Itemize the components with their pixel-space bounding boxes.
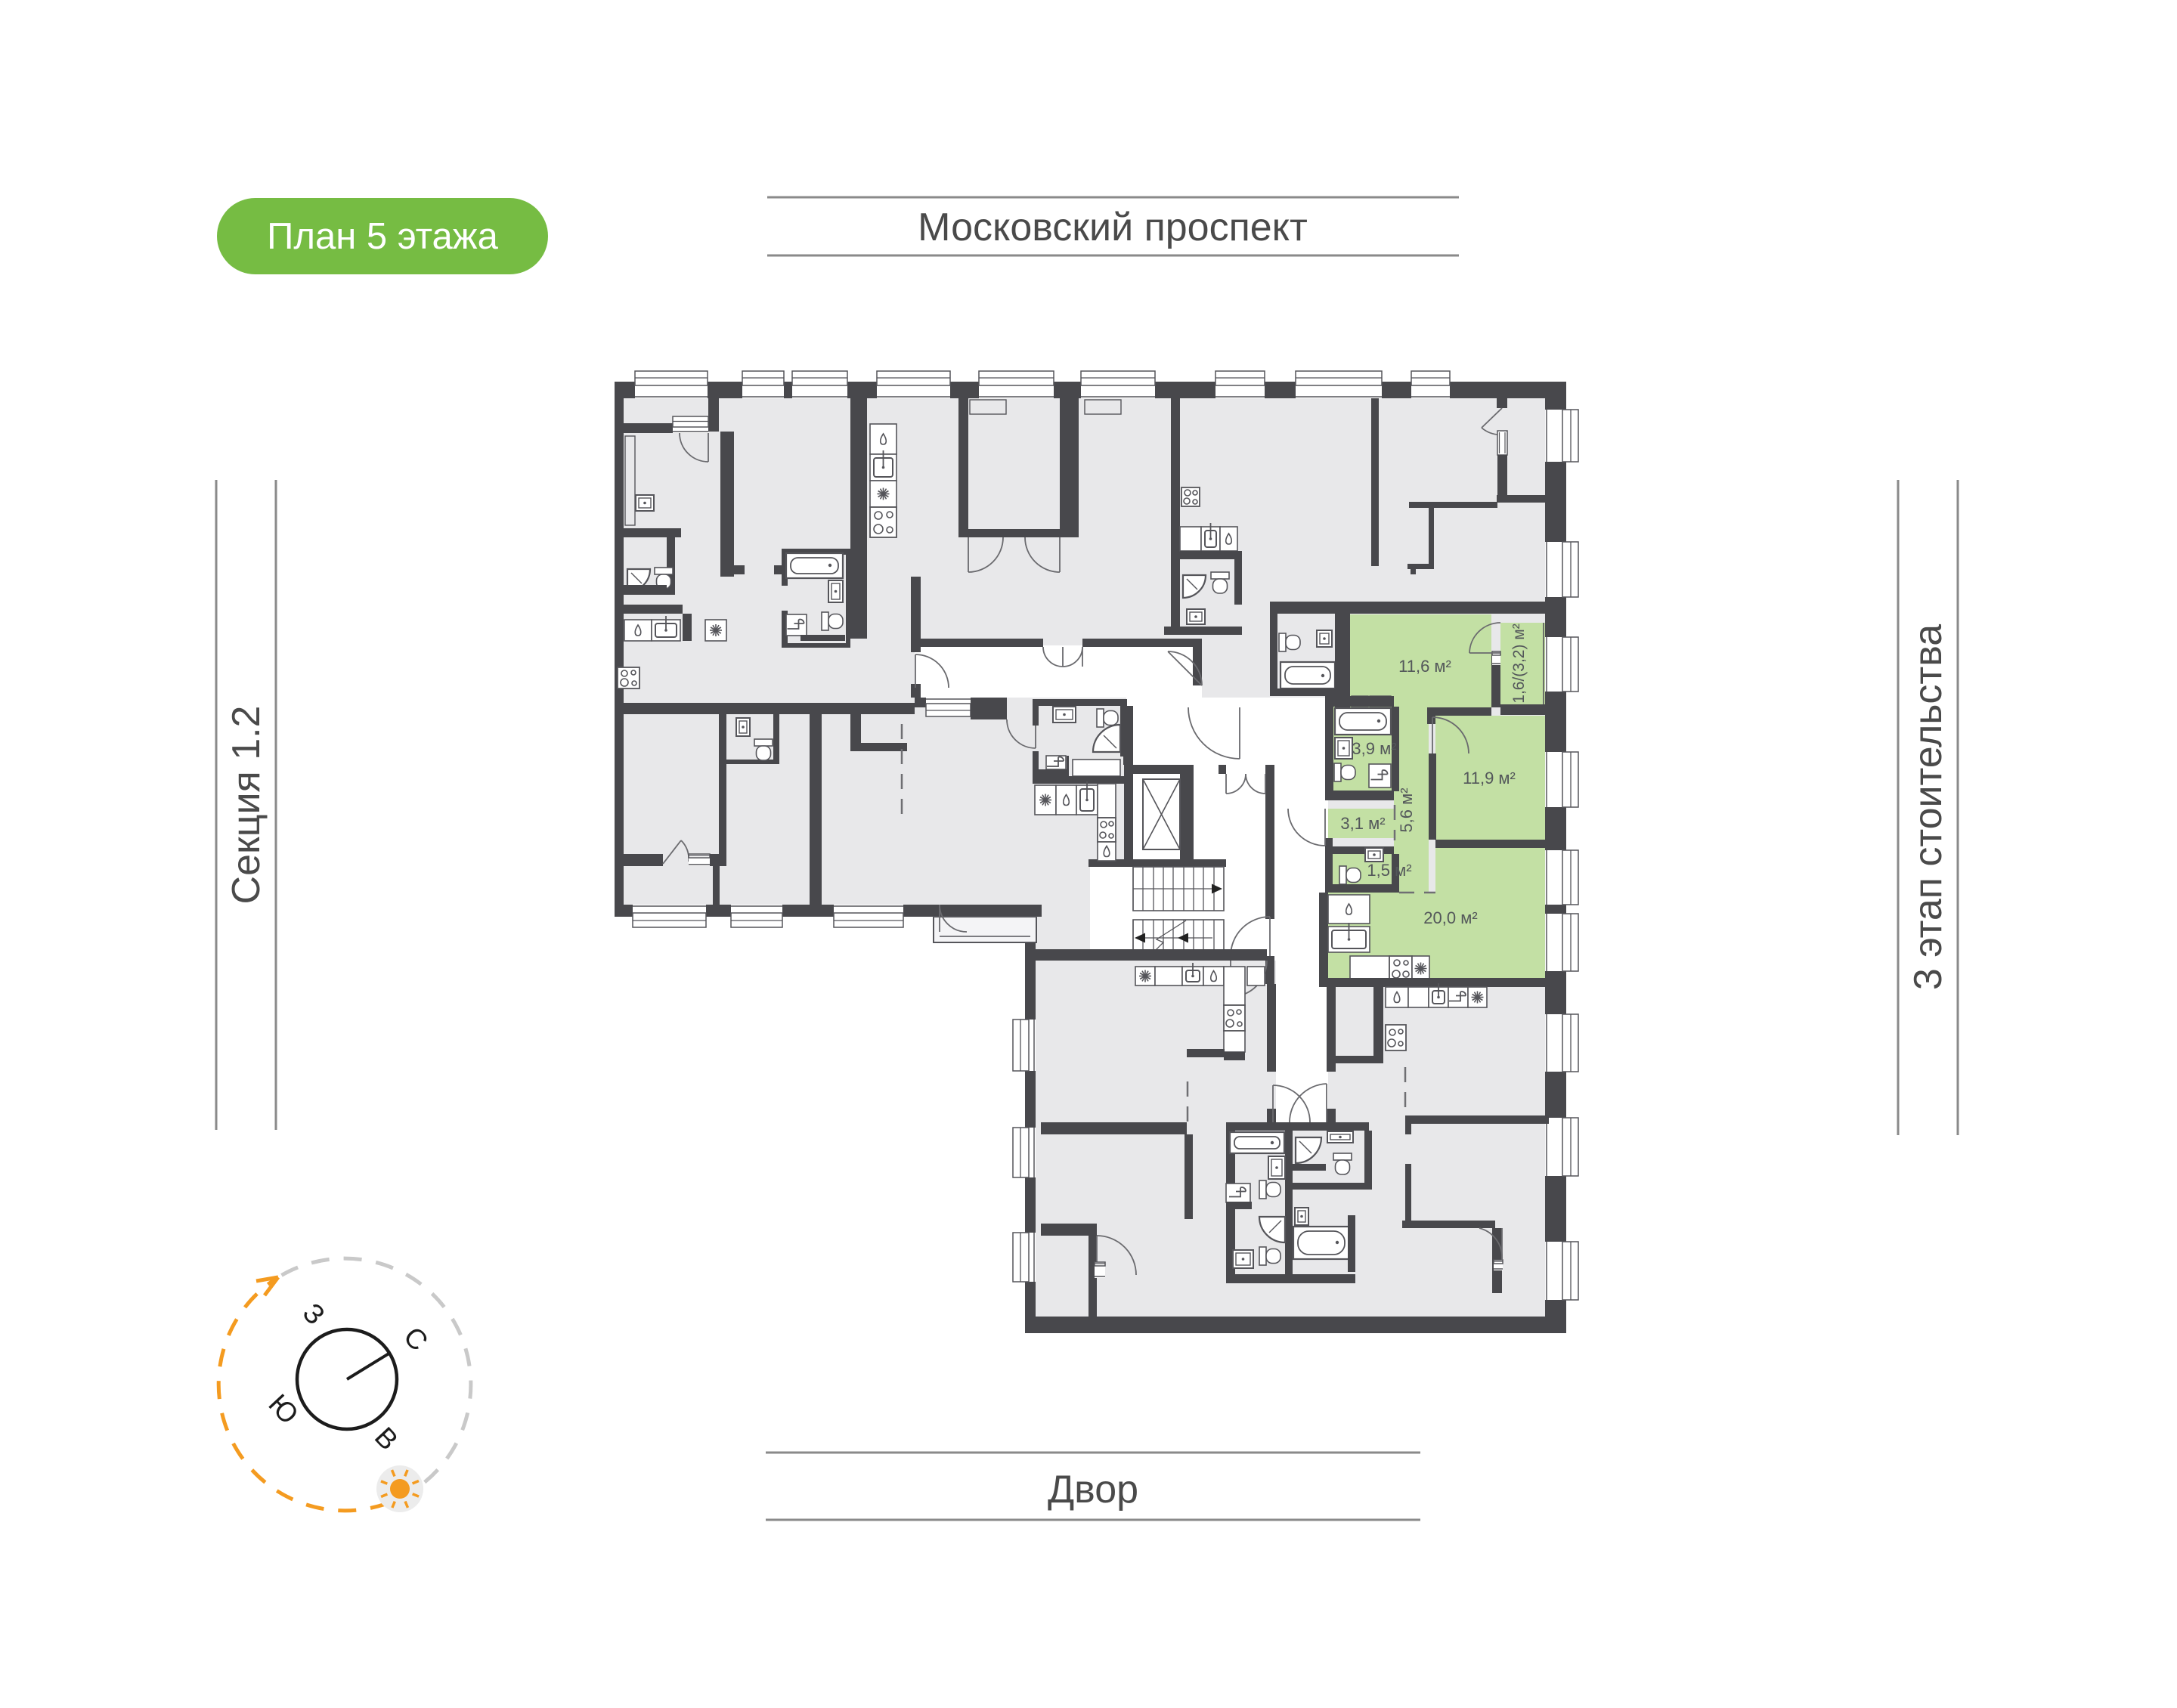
svg-text:Московский проспект: Московский проспект	[918, 206, 1308, 249]
svg-text:З: З	[297, 1297, 331, 1330]
svg-text:3 этап стоительства: 3 этап стоительства	[1906, 624, 1950, 990]
svg-text:План 5 этажа: План 5 этажа	[267, 216, 498, 257]
svg-text:Секция 1.2: Секция 1.2	[225, 706, 268, 905]
svg-text:3,9 м²: 3,9 м²	[1352, 739, 1396, 758]
svg-text:20,0 м²: 20,0 м²	[1423, 908, 1477, 927]
svg-text:С: С	[398, 1321, 434, 1357]
svg-text:1,5 м²: 1,5 м²	[1367, 861, 1411, 880]
svg-text:В: В	[369, 1421, 404, 1456]
svg-text:Двор: Двор	[1048, 1468, 1138, 1512]
svg-text:11,6 м²: 11,6 м²	[1398, 657, 1451, 676]
svg-text:5,6 м²: 5,6 м²	[1397, 787, 1416, 832]
svg-text:3,1 м²: 3,1 м²	[1340, 814, 1385, 833]
svg-text:11,9 м²: 11,9 м²	[1463, 769, 1516, 787]
svg-text:1,6/(3,2) м²: 1,6/(3,2) м²	[1510, 623, 1528, 703]
